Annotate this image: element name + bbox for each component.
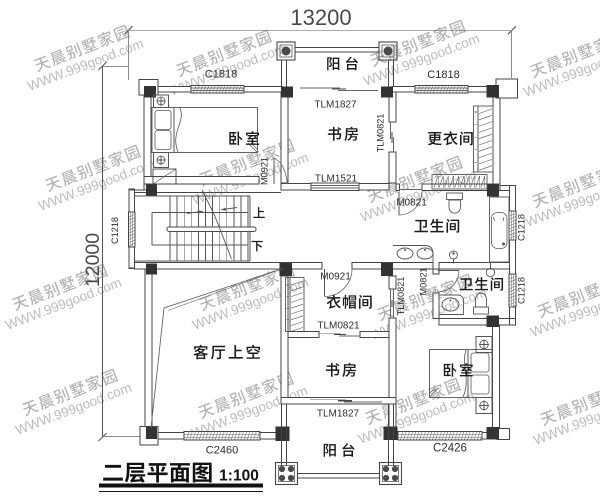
svg-text:C1818: C1818: [427, 69, 459, 81]
svg-text:C1218: C1218: [517, 277, 527, 304]
svg-text:TLM1521: TLM1521: [315, 174, 358, 185]
svg-text:M0921: M0921: [320, 272, 351, 283]
svg-text:M0821: M0821: [419, 267, 429, 295]
svg-text:12000: 12000: [82, 233, 104, 287]
svg-text:TLM0821: TLM0821: [376, 114, 386, 153]
svg-text:TLM1827: TLM1827: [317, 409, 360, 420]
svg-text:C1818: C1818: [205, 69, 237, 81]
svg-text:TLM0821: TLM0821: [396, 277, 406, 316]
svg-text:TLM0821: TLM0821: [317, 321, 360, 332]
svg-text:M0821: M0821: [396, 198, 427, 209]
svg-text:C1218: C1218: [517, 214, 527, 241]
svg-text:1:100: 1:100: [219, 468, 259, 485]
svg-text:13200: 13200: [290, 5, 351, 30]
svg-text:C2460: C2460: [206, 445, 238, 457]
svg-text:M0921: M0921: [260, 157, 270, 185]
svg-text:C2426: C2426: [433, 443, 467, 455]
svg-text:TLM1827: TLM1827: [314, 100, 357, 111]
svg-text:C1218: C1218: [110, 217, 120, 244]
